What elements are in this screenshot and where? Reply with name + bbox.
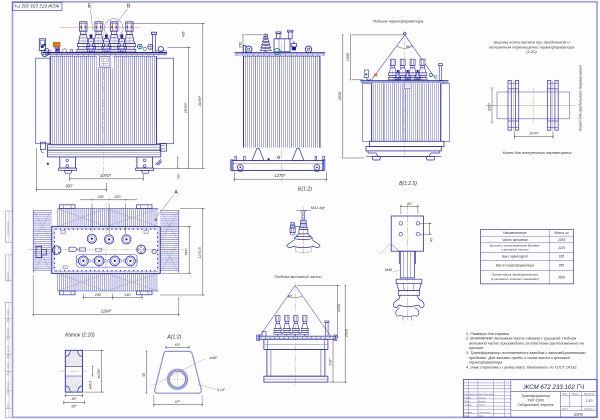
svg-text:Лит.: Лит. [561, 394, 568, 396]
svg-text:Колея для продольного переме: Колея для продольного перемещения [579, 65, 583, 130]
svg-text:ø45*: ø45* [210, 356, 219, 360]
svg-text:ЖСМ 672 233.102 ГЧ: ЖСМ 672 233.102 ГЧ [14, 4, 61, 9]
svg-text:1. Размеры для справок.: 1. Размеры для справок. [466, 332, 510, 336]
svg-text:Масштаб: Масштаб [584, 394, 595, 396]
svg-text:997: 997 [66, 184, 74, 189]
svg-text:ø46,5: ø46,5 [88, 381, 92, 390]
svg-text:764*: 764* [185, 248, 189, 256]
svg-text:250: 250 [96, 195, 104, 199]
svg-text:45: 45 [430, 238, 434, 242]
svg-text:Утв.: Утв. [465, 415, 470, 417]
svg-text:Н.контр.: Н.контр. [465, 412, 473, 414]
svg-text:ø150*: ø150* [97, 368, 101, 378]
svg-text:Подп. и дата: Подп. и дата [6, 362, 9, 375]
svg-text:трансформатора: трансформатора [469, 361, 502, 365]
svg-text:Андреев: Андреев [478, 400, 487, 403]
svg-text:Изм. Лист № докум. Под: Изм. Лист № докум. Подп. Дата [465, 393, 494, 396]
svg-text:ОГК: ОГК [574, 412, 583, 417]
svg-text:Лист: Лист [561, 409, 568, 411]
svg-text:Хомяков: Хомяков [478, 397, 487, 399]
svg-text:(1:20): (1:20) [526, 49, 537, 54]
svg-text:Часть активная: Часть активная [502, 238, 528, 242]
svg-text:Подъем активной части: Подъем активной части [274, 274, 322, 279]
svg-text:2635: 2635 [338, 91, 342, 101]
svg-text:Инв. № подл.: Инв. № подл. [6, 381, 9, 394]
svg-text:30°: 30° [287, 295, 293, 299]
svg-text:В: В [127, 4, 131, 10]
svg-text:Масса: Масса [572, 394, 579, 396]
svg-text:и активной частью: и активной частью [501, 248, 529, 252]
svg-text:4. Знак строповки и центр масс: 4. Знак строповки и центр масс. Выполнит… [466, 365, 578, 369]
svg-text:60: 60 [407, 202, 411, 206]
svg-text:3. Трансформатор поставляется: 3. Трансформатор поставляется заводом с … [466, 351, 587, 355]
svg-text:3600: 3600 [558, 276, 565, 280]
svg-text:2525: 2525 [345, 328, 349, 338]
svg-text:Юдин: Юдин [479, 414, 484, 417]
svg-text:Полная масса трансформатора: Полная масса трансформатора [492, 272, 539, 276]
svg-text:250: 250 [238, 41, 242, 49]
svg-text:(с катками и контакт зажимами): (с катками и контакт зажимами) [491, 277, 539, 281]
svg-text:Подп. и дата: Подп. и дата [6, 309, 9, 322]
svg-text:Подъем трансформатора: Подъем трансформатора [373, 19, 424, 24]
svg-text:Масло трансформатора: Масло трансформатора [496, 264, 534, 268]
svg-text:Инв. № дубл.: Инв. № дубл. [6, 327, 9, 340]
svg-text:Разраб.: Разраб. [465, 397, 472, 399]
svg-text:55*: 55* [71, 397, 77, 401]
svg-text:Колея для поперечного переме: Колея для поперечного перемещения [503, 150, 572, 155]
svg-text:Подп.: Подп. [6, 403, 9, 409]
svg-text:2035: 2035 [557, 238, 565, 242]
svg-text:Масса, кг: Масса, кг [554, 231, 569, 235]
svg-text:240: 240 [123, 293, 131, 297]
svg-text:В(1:2.5): В(1:2.5) [399, 181, 417, 187]
svg-text:Наименование: Наименование [503, 231, 527, 235]
svg-text:75*: 75* [177, 173, 181, 179]
svg-text:Громов: Громов [478, 405, 484, 407]
svg-text:1000: 1000 [337, 303, 341, 312]
svg-text:436: 436 [182, 31, 186, 37]
svg-text:97*: 97* [175, 400, 181, 404]
svg-text:250: 250 [113, 195, 121, 199]
svg-text:ТМГ-1600: ТМГ-1600 [527, 399, 543, 403]
svg-text:63*: 63* [175, 343, 181, 347]
svg-text:1270*: 1270* [275, 173, 286, 178]
svg-text:Б: Б [88, 4, 92, 10]
svg-text:Габаритный чертеж: Габаритный чертеж [518, 403, 554, 407]
svg-text:Каток (1:10): Каток (1:10) [65, 333, 95, 339]
svg-text:855: 855 [559, 264, 565, 268]
svg-text:1270,5: 1270,5 [198, 246, 202, 258]
svg-text:Бак с арматурой: Бак с арматурой [502, 255, 528, 259]
svg-text:М12-6g*: М12-6g* [311, 206, 326, 210]
svg-text:Т.контр.: Т.контр. [465, 405, 473, 407]
svg-text:1:10: 1:10 [586, 399, 593, 403]
svg-text:820*: 820* [487, 103, 491, 111]
svg-text:крышке.: крышке. [469, 346, 484, 350]
svg-text:М48: М48 [385, 268, 392, 272]
svg-text:2. ВНИМАНИЕ! Активная часть: 2. ВНИМАНИЕ! Активная часть связана с кр… [465, 337, 577, 341]
svg-text:Листов 1: Листов 1 [583, 409, 595, 411]
svg-text:240: 240 [94, 293, 102, 297]
svg-text:1164*: 1164* [101, 309, 112, 314]
svg-text:60°: 60° [406, 45, 412, 49]
svg-text:Перв. примен.: Перв. примен. [7, 221, 9, 235]
svg-text:519*: 519* [328, 358, 332, 366]
svg-text:1070*: 1070* [529, 132, 539, 136]
svg-text:5,16°: 5,16° [217, 388, 226, 392]
svg-text:2224: 2224 [557, 246, 565, 250]
svg-text:ЖСМ 672 233.102 ГЧ: ЖСМ 672 233.102 ГЧ [523, 384, 585, 391]
svg-text:А(1:2): А(1:2) [166, 335, 181, 341]
svg-text:Б(1:2): Б(1:2) [298, 187, 312, 193]
svg-text:Самосадный: Самосадный [479, 411, 491, 414]
svg-text:1570*: 1570* [183, 102, 188, 113]
svg-text:Пров.: Пров. [465, 401, 470, 403]
svg-text:835: 835 [559, 255, 565, 259]
svg-text:активной части производить: активной части производить за пластины р… [469, 341, 584, 345]
svg-text:Взам. инв. №: Взам. инв. № [6, 345, 9, 358]
svg-text:пробками. Для заливки пробы: пробками. Для заливки пробы и слива масл… [469, 356, 571, 360]
svg-text:65*: 65* [71, 405, 77, 409]
svg-text:1000: 1000 [346, 52, 350, 61]
svg-text:1070*: 1070* [100, 173, 111, 178]
svg-text:Справ. №: Справ. № [6, 272, 9, 282]
svg-text:2035*: 2035* [197, 95, 202, 107]
svg-text:Трансформатор: Трансформатор [521, 394, 549, 398]
svg-text:58: 58 [142, 373, 146, 377]
svg-text:А: А [174, 190, 178, 196]
